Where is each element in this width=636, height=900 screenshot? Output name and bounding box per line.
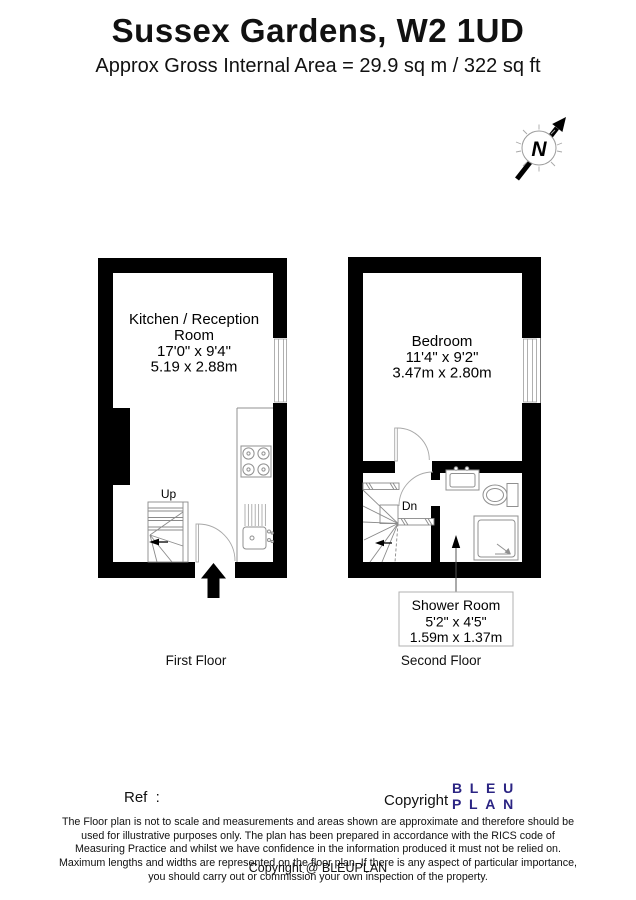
svg-text:Shower Room: Shower Room: [412, 597, 501, 613]
svg-text:3.47m x 2.80m: 3.47m x 2.80m: [392, 365, 491, 382]
bedroom-doorway: [395, 460, 432, 474]
shower-wall-pier: [431, 472, 440, 480]
window-icon: [273, 338, 289, 403]
shower-room-callout: Shower Room 5'2" x 4'5" 1.59m x 1.37m: [399, 592, 513, 646]
first-floor-plan: Up Kitchen / Reception Room 17'0" x 9'4"…: [90, 250, 305, 600]
svg-text:Room: Room: [174, 327, 214, 344]
second-floor-label: Second Floor: [371, 653, 511, 668]
stairs-up-label: Up: [161, 487, 177, 501]
bleuplan-logo: BLEU: [452, 781, 536, 796]
stairs-up-icon: [148, 502, 188, 562]
interior-wall: [348, 461, 541, 473]
bathroom-sink-icon: [446, 467, 479, 490]
shower-icon: [474, 516, 518, 560]
copyright-line: Copyright @ BLEUPLAN: [0, 861, 636, 875]
hob-icon: [241, 446, 271, 477]
kitchen-room-label: Kitchen / Reception Room 17'0" x 9'4" 5.…: [129, 311, 259, 376]
svg-text:5.19 x 2.88m: 5.19 x 2.88m: [151, 359, 238, 376]
floorplan-page: Sussex Gardens, W2 1UD Approx Gross Inte…: [0, 0, 636, 900]
bedroom-label: Bedroom 11'4" x 9'2" 3.47m x 2.80m: [392, 333, 491, 382]
second-floor-plan: Dn Bedroom 11'4" x 9'2" 3.47m x 2.80m Sh…: [345, 250, 545, 650]
svg-text:17'0" x 9'4": 17'0" x 9'4": [157, 343, 231, 360]
ref-label: Ref :: [124, 789, 160, 806]
sink-icon: [243, 527, 273, 549]
page-title: Sussex Gardens, W2 1UD: [0, 12, 636, 50]
bleuplan-logo: PLAN: [452, 797, 536, 812]
svg-text:Bedroom: Bedroom: [412, 333, 473, 350]
svg-text:Kitchen / Reception: Kitchen / Reception: [129, 311, 259, 328]
window-icon: [522, 338, 541, 403]
left-wall-pier: [98, 408, 130, 485]
entrance-door-icon: [196, 524, 235, 562]
toilet-icon: [483, 484, 518, 507]
svg-text:5'2" x 4'5": 5'2" x 4'5": [425, 614, 486, 630]
area-subtitle: Approx Gross Internal Area = 29.9 sq m /…: [0, 55, 636, 78]
shower-wall: [431, 506, 440, 562]
compass-icon: N: [505, 105, 575, 190]
first-floor-label: First Floor: [126, 653, 266, 668]
stairs-down-icon: [363, 483, 434, 562]
copyright-label: Copyright: [384, 792, 448, 809]
svg-text:11'4" x 9'2": 11'4" x 9'2": [406, 349, 479, 366]
svg-text:1.59m x 1.37m: 1.59m x 1.37m: [410, 629, 503, 645]
compass-n-label: N: [531, 138, 547, 161]
bedroom-door-icon: [395, 428, 430, 461]
stairs-down-label: Dn: [402, 499, 417, 513]
drainer-icon: [245, 504, 265, 526]
